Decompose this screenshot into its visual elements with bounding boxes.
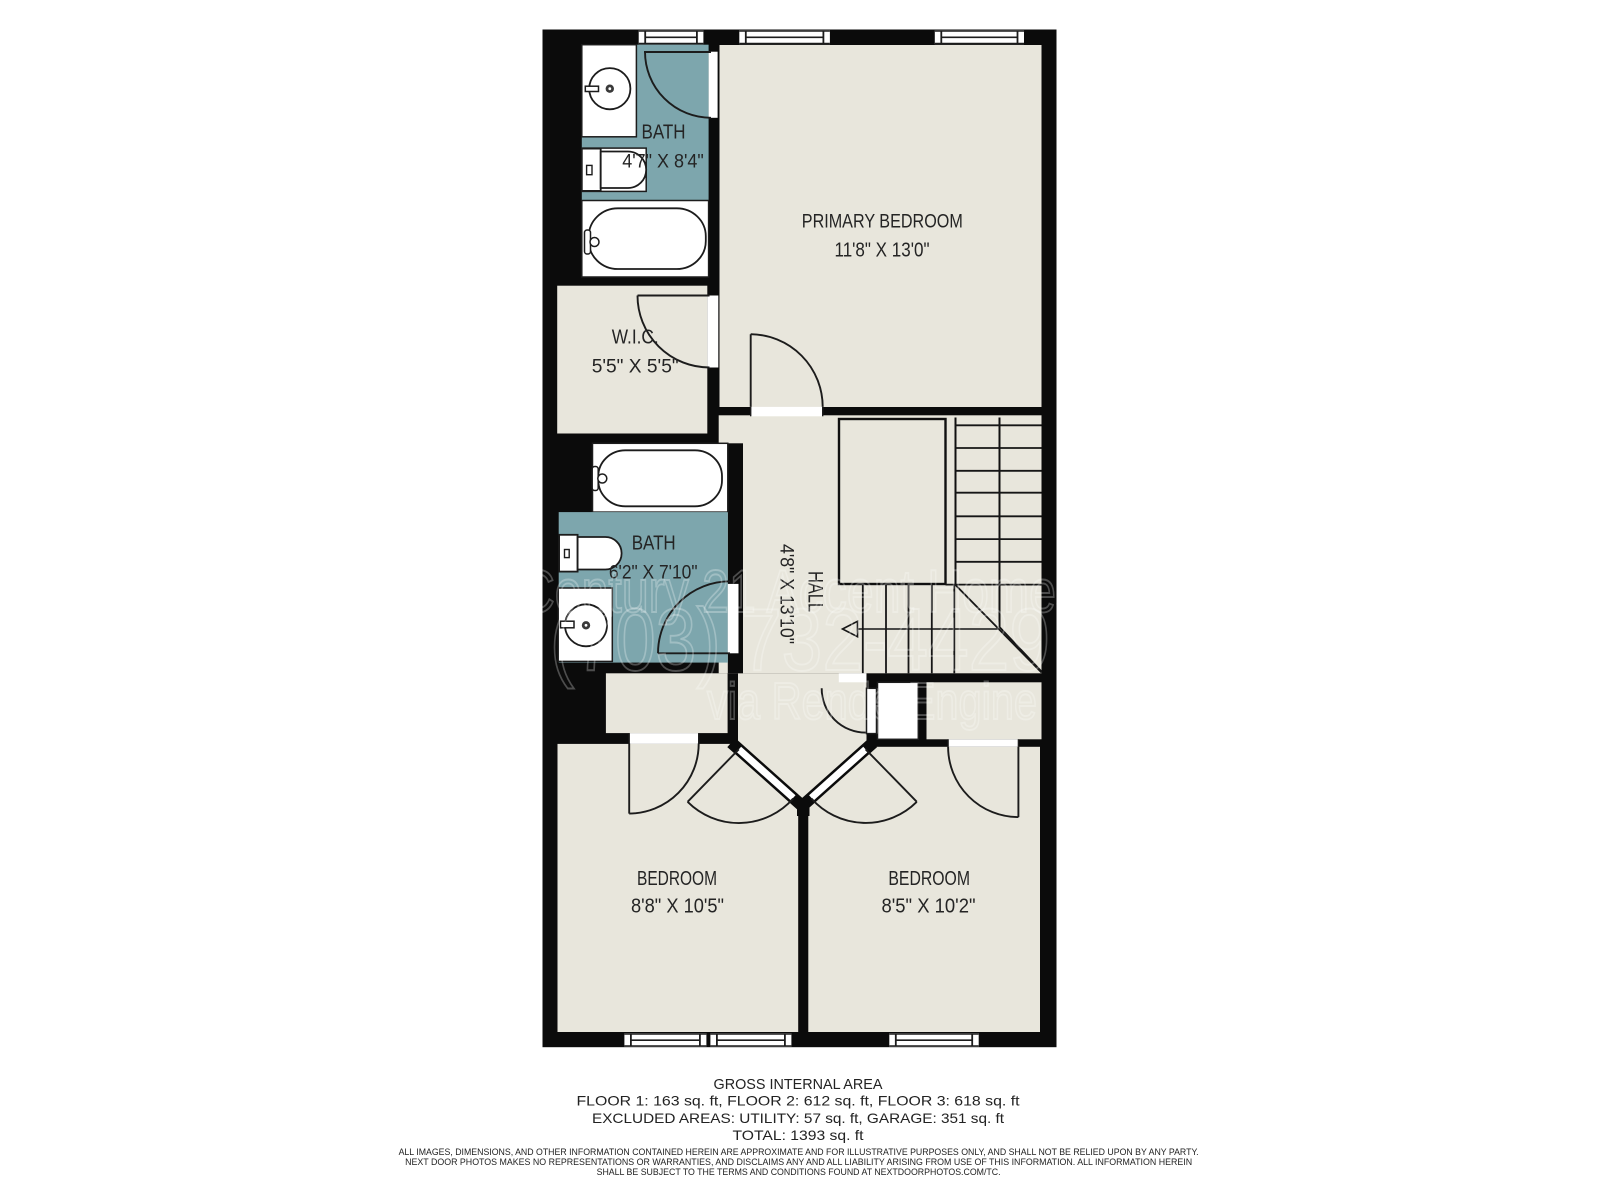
svg-text:BATH: BATH xyxy=(642,121,686,143)
svg-text:EXCLUDED AREAS: UTILITY: 57 sq: EXCLUDED AREAS: UTILITY: 57 sq. ft, GARA… xyxy=(592,1110,1004,1126)
svg-text:ALL IMAGES, DIMENSIONS, AND OT: ALL IMAGES, DIMENSIONS, AND OTHER INFORM… xyxy=(399,1147,1199,1157)
svg-text:W.I.C.: W.I.C. xyxy=(612,327,659,349)
svg-text:11'8" X 13'0": 11'8" X 13'0" xyxy=(835,239,930,261)
svg-text:FLOOR 1: 163 sq. ft, FLOOR 2:: FLOOR 1: 163 sq. ft, FLOOR 2: 612 sq. ft… xyxy=(577,1093,1020,1109)
svg-text:4'7" X 8'4": 4'7" X 8'4" xyxy=(622,151,704,173)
svg-text:8'5" X 10'2": 8'5" X 10'2" xyxy=(882,896,976,918)
svg-text:NEXT DOOR PHOTOS MAKES NO REPR: NEXT DOOR PHOTOS MAKES NO REPRESENTATION… xyxy=(405,1157,1192,1167)
svg-text:5'5" X 5'5": 5'5" X 5'5" xyxy=(592,356,679,378)
svg-text:8'8" X 10'5": 8'8" X 10'5" xyxy=(631,896,724,918)
svg-text:GROSS INTERNAL AREA: GROSS INTERNAL AREA xyxy=(714,1077,883,1093)
svg-text:via RenderEngine: via RenderEngine xyxy=(707,673,1037,731)
svg-text:BEDROOM: BEDROOM xyxy=(888,868,970,890)
svg-text:BATH: BATH xyxy=(632,533,676,555)
svg-text:BEDROOM: BEDROOM xyxy=(637,868,717,890)
svg-text:PRIMARY BEDROOM: PRIMARY BEDROOM xyxy=(802,211,963,233)
svg-text:SHALL BE SUBJECT TO THE TERMS: SHALL BE SUBJECT TO THE TERMS AND CONDIT… xyxy=(597,1167,1001,1177)
svg-text:TOTAL: 1393 sq. ft: TOTAL: 1393 sq. ft xyxy=(733,1127,864,1143)
